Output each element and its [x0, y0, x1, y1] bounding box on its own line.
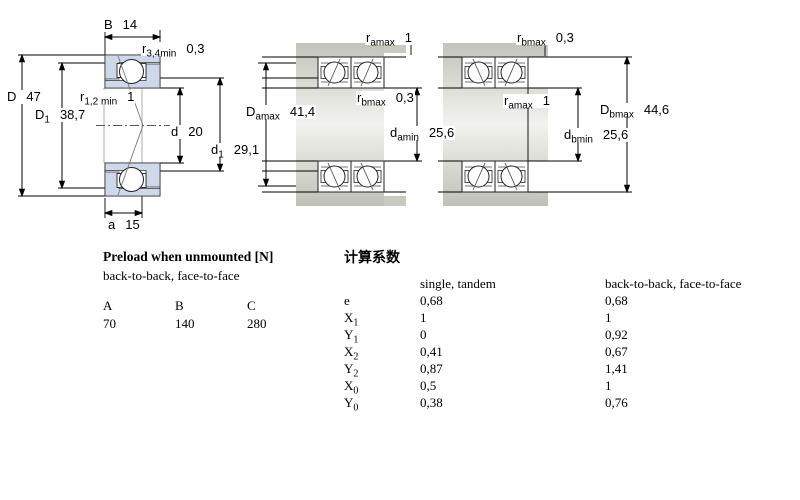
factor-symbol: X0	[344, 378, 420, 395]
factor-value: 1	[420, 310, 605, 327]
dim-label-D1: D138,7	[34, 108, 86, 122]
preload-subtitle: back-to-back, face-to-face	[103, 268, 353, 284]
dim-label-rbmax-paired: rbmax0,3	[516, 31, 575, 45]
preload-title: Preload when unmounted [N]	[103, 249, 353, 265]
bearing-spec-page: B14 r3,4min0,3 D47 D138,7 r1,2 min1 d20 …	[0, 0, 800, 500]
factor-value: 0,76	[605, 395, 784, 412]
factor-value: 0,38	[420, 395, 605, 412]
tandem-bottom-pair	[318, 161, 384, 192]
factor-symbol: X2	[344, 344, 420, 361]
preload-col-header: C	[247, 298, 319, 314]
dim-label-a: a15	[107, 218, 141, 232]
paired-arrangement-figure	[438, 43, 632, 206]
factor-value: 1,41	[605, 361, 784, 378]
factor-value: 0,41	[420, 344, 605, 361]
factor-symbol: Y0	[344, 395, 420, 412]
factors-col-paired: back-to-back, face-to-face	[605, 276, 784, 293]
dim-label-r12: r1,2 min1	[79, 90, 135, 104]
factor-value: 1	[605, 310, 784, 327]
dim-label-d1: d129,1	[210, 143, 260, 157]
factor-value: 0,5	[420, 378, 605, 395]
preload-col-header: A	[103, 298, 175, 314]
tandem-arrangement-figure	[258, 36, 422, 206]
factor-value: 1	[605, 378, 784, 395]
paired-bottom-pair	[462, 161, 528, 192]
factors-title: 计算系数	[344, 247, 784, 267]
dim-label-Dbmax: Dbmax44,6	[599, 103, 670, 117]
preload-value: 280	[247, 316, 319, 332]
dim-label-d: d20	[170, 125, 204, 139]
preload-table: Preload when unmounted [N] back-to-back,…	[103, 249, 353, 332]
dim-label-r34: r3,4min0,3	[141, 42, 205, 56]
factor-symbol: e	[344, 293, 420, 310]
dim-label-D: D47	[6, 90, 42, 104]
factor-symbol: X1	[344, 310, 420, 327]
dim-label-rbmax-tandem: rbmax0,3	[356, 91, 415, 105]
dim-label-ramax-tandem: ramax1	[365, 31, 413, 45]
factor-value: 0,67	[605, 344, 784, 361]
factor-value: 0,68	[420, 293, 605, 310]
preload-value: 140	[175, 316, 247, 332]
dim-label-Damax: Damax41,4	[245, 105, 316, 119]
factor-symbol: Y2	[344, 361, 420, 378]
factor-symbol: Y1	[344, 327, 420, 344]
factor-value: 0	[420, 327, 605, 344]
dim-label-B: B14	[103, 18, 138, 32]
factor-value: 0,87	[420, 361, 605, 378]
factor-value: 0,92	[605, 327, 784, 344]
dim-label-damin: damin25,6	[389, 126, 455, 140]
tandem-top-pair	[318, 57, 384, 88]
preload-col-header: B	[175, 298, 247, 314]
factors-col-single: single, tandem	[420, 276, 605, 293]
preload-value: 70	[103, 316, 175, 332]
factor-value: 0,68	[605, 293, 784, 310]
calculation-factors-table: 计算系数 single, tandem back-to-back, face-t…	[344, 247, 784, 412]
dim-label-dbmin: dbmin25,6	[563, 128, 629, 142]
bearing-section-bottom	[105, 126, 160, 197]
dim-label-ramax-paired: ramax1	[503, 94, 551, 108]
paired-top-pair	[462, 57, 528, 88]
